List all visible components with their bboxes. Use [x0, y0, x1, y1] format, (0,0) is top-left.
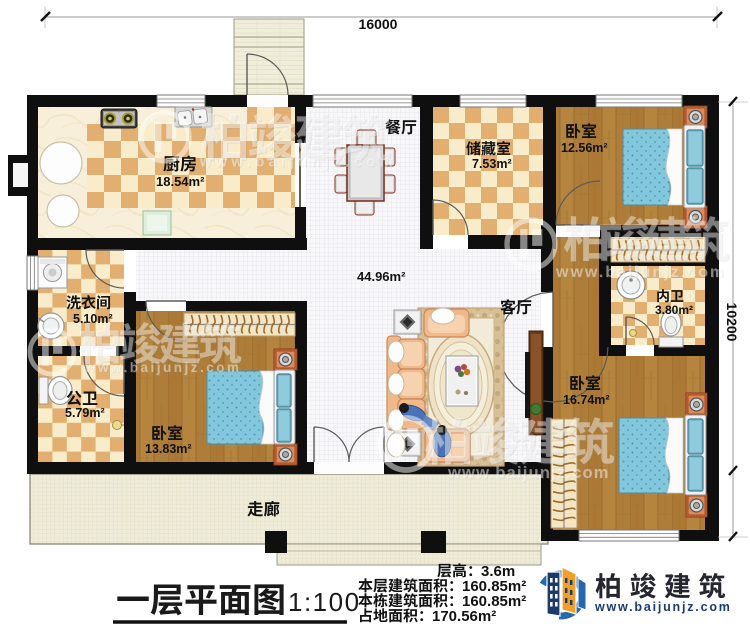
svg-text:7.53m²: 7.53m² — [472, 157, 512, 171]
svg-text:www.baijunjz.com: www.baijunjz.com — [199, 155, 397, 171]
svg-text:www.baijunjz.com: www.baijunjz.com — [447, 464, 610, 482]
svg-text:16.74m²: 16.74m² — [563, 393, 610, 407]
svg-text:5.79m²: 5.79m² — [65, 406, 105, 420]
svg-text:www.baijunjz.com: www.baijunjz.com — [594, 600, 732, 614]
svg-text:1:100: 1:100 — [288, 587, 361, 617]
svg-text:16000: 16000 — [359, 16, 398, 32]
svg-text:44.96m²: 44.96m² — [357, 269, 406, 284]
svg-text:13.83m²: 13.83m² — [145, 442, 192, 456]
svg-text:170.56m²: 170.56m² — [432, 608, 496, 625]
svg-text:10200: 10200 — [724, 303, 740, 342]
svg-text:3.80m²: 3.80m² — [655, 303, 693, 317]
svg-text:www.baijunjz.com: www.baijunjz.com — [84, 360, 242, 375]
svg-text:www.baijunjz.com: www.baijunjz.com — [555, 264, 726, 281]
svg-text:12.56m²: 12.56m² — [561, 141, 608, 155]
svg-text:18.54m²: 18.54m² — [156, 174, 205, 189]
